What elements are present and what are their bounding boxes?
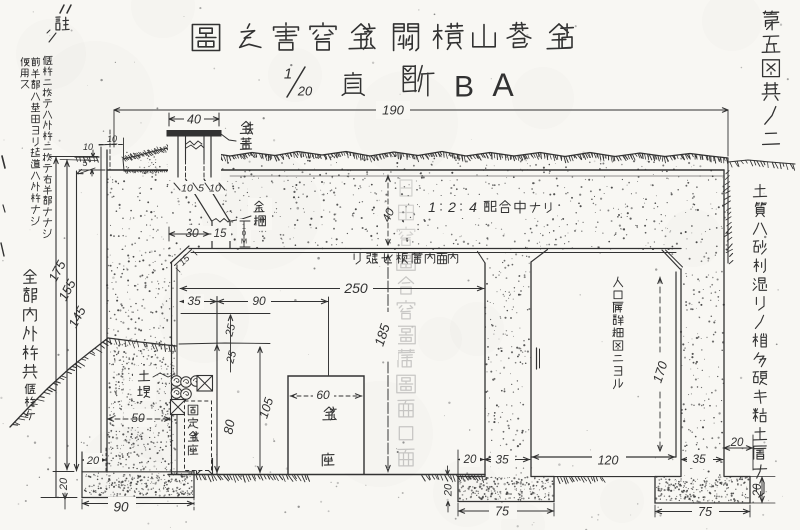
svg-text:30: 30 <box>185 226 199 240</box>
svg-text:35: 35 <box>495 453 509 467</box>
svg-text:10: 10 <box>209 183 221 195</box>
svg-text:35: 35 <box>187 294 201 308</box>
svg-text:20: 20 <box>730 437 744 449</box>
svg-text:10: 10 <box>107 134 117 144</box>
svg-text:40: 40 <box>187 112 201 126</box>
svg-text:B: B <box>454 71 474 104</box>
svg-text:75: 75 <box>698 505 712 519</box>
svg-text:35: 35 <box>692 452 706 466</box>
svg-text:20: 20 <box>752 483 764 497</box>
svg-text:20: 20 <box>297 84 313 99</box>
svg-text:120: 120 <box>598 453 619 467</box>
svg-text:90: 90 <box>252 294 266 308</box>
svg-text:50: 50 <box>131 411 145 425</box>
svg-text:5: 5 <box>198 183 204 195</box>
svg-text:75: 75 <box>495 504 509 518</box>
svg-text:4: 4 <box>469 199 477 215</box>
svg-text::: : <box>459 199 463 214</box>
svg-text:1: 1 <box>428 199 436 215</box>
svg-text:M: M <box>241 237 247 246</box>
svg-text:20: 20 <box>463 454 477 466</box>
svg-text:20: 20 <box>442 483 454 497</box>
svg-text:90: 90 <box>113 500 129 515</box>
svg-text:190: 190 <box>382 103 404 118</box>
svg-text::: : <box>439 199 443 214</box>
svg-text:10: 10 <box>181 183 193 195</box>
svg-text:250: 250 <box>343 280 368 296</box>
svg-text:A: A <box>492 67 514 103</box>
svg-text:1: 1 <box>284 65 292 82</box>
svg-text:20: 20 <box>86 455 100 467</box>
svg-text:15: 15 <box>214 228 227 240</box>
svg-text:60: 60 <box>316 388 330 402</box>
svg-text:10: 10 <box>83 142 93 152</box>
svg-text:20: 20 <box>58 477 70 491</box>
svg-text:2: 2 <box>447 199 456 215</box>
